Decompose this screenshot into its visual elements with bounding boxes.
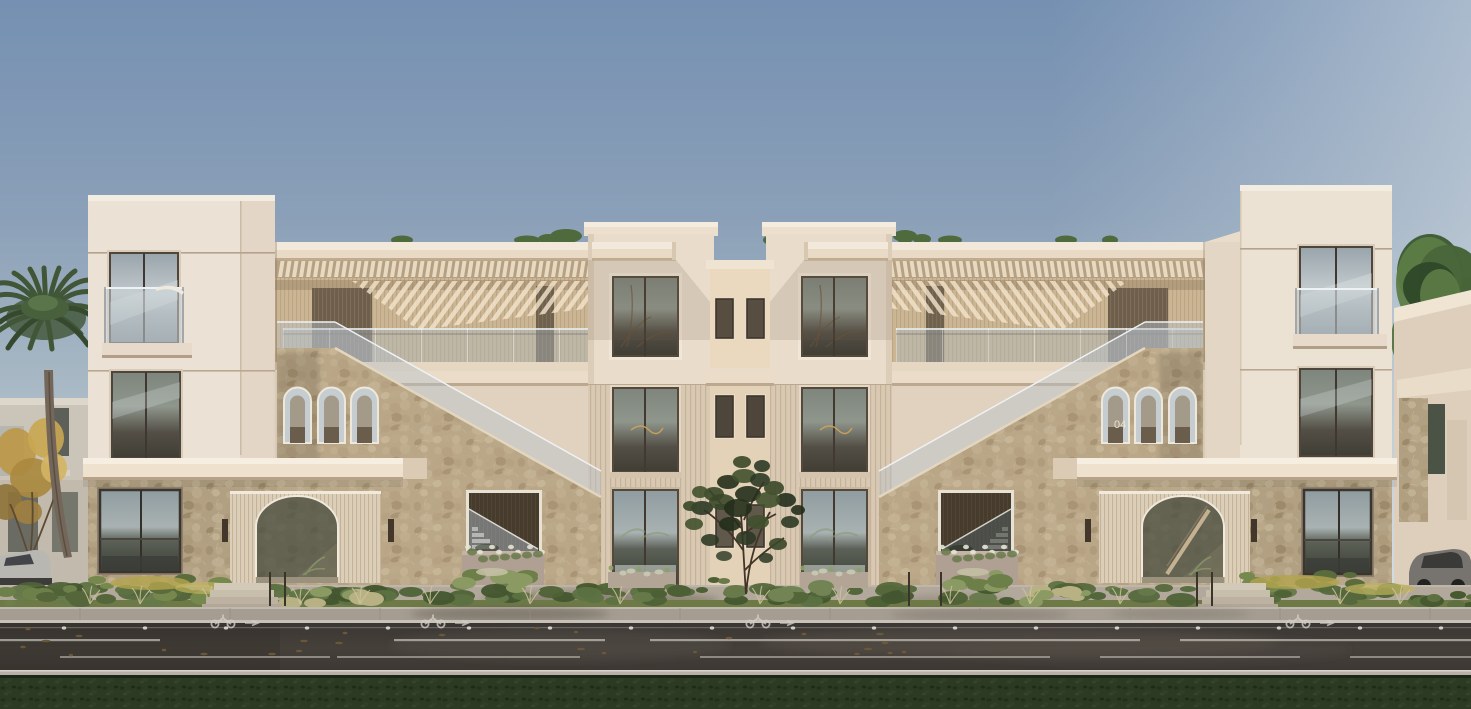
svg-text:04: 04: [1114, 419, 1126, 431]
